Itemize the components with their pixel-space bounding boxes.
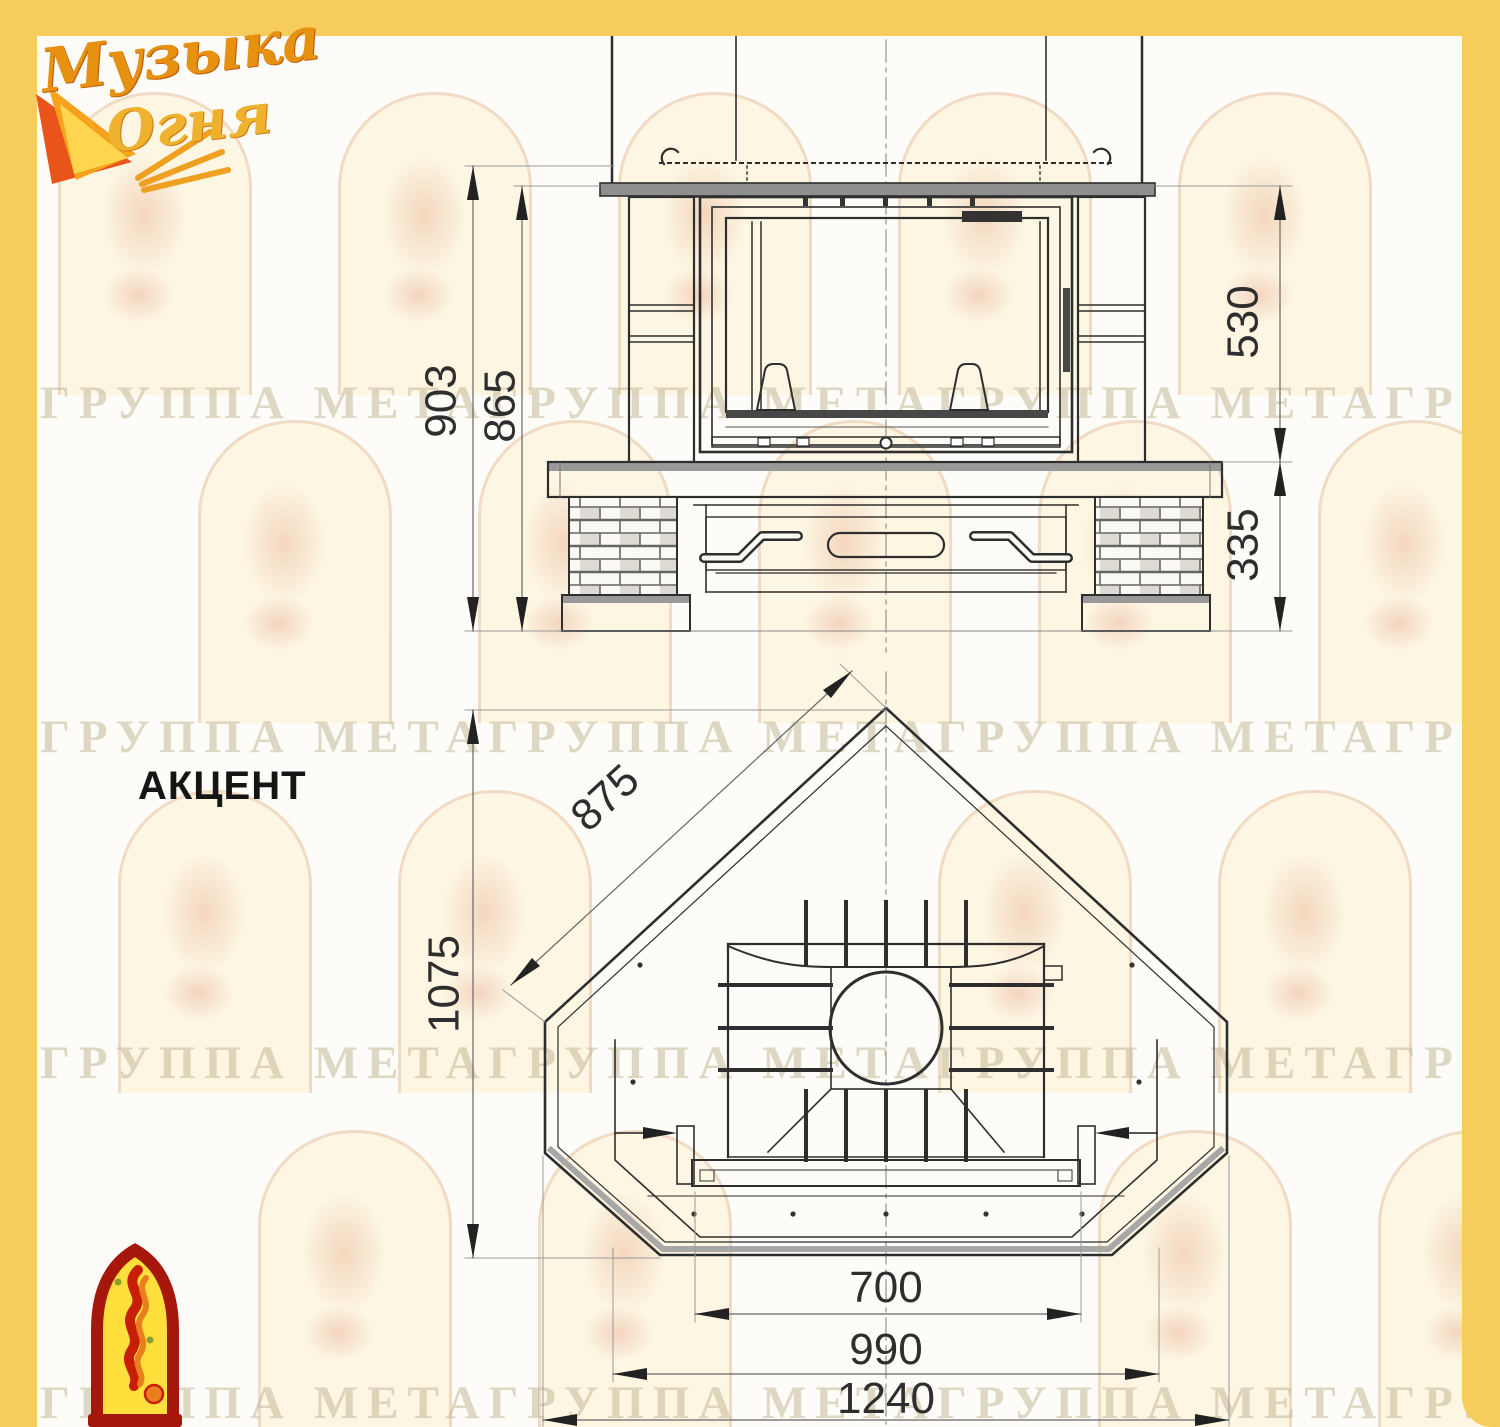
frame-left-border [0,0,37,1427]
plan-view: 1075 875 700 990 1240 [420,664,1229,1426]
front-elevation: 903 865 530 335 [417,36,1292,652]
brick-pedestal-right [1095,497,1203,595]
dim-side-edge: 875 [561,755,648,841]
emblem-sun-dot [145,1385,163,1403]
page: ГРУППА МЕТАГРУППА МЕТАГРУППА МЕТАГРУППА … [0,0,1500,1427]
fireplace-dimension-drawing: 903 865 530 335 [0,0,1500,1427]
andiron-left [757,364,795,410]
bench [548,462,1222,497]
model-title: АКЦЕНТ [138,764,307,809]
frame-right-border [1462,0,1500,1427]
latch-knob [881,438,892,449]
dim-inner-width: 990 [849,1325,922,1374]
brand-plate [962,211,1022,222]
dim-overall-width: 1240 [837,1374,935,1423]
frame-tabs [803,197,975,206]
mantel-shelf [600,183,1155,196]
side-tab [1044,966,1062,980]
andiron-right [950,364,988,410]
dim-depth: 1075 [420,935,469,1033]
plinth-left [562,595,690,631]
brick-pedestal-left [569,497,677,595]
hearth-band [726,410,1048,418]
dim-opening-width: 700 [849,1263,922,1312]
plinth-right [1082,595,1210,631]
door-hinge [1063,288,1070,372]
pillar-right [1078,197,1145,462]
chimney [612,36,1142,183]
plan-dimensions: 1075 875 700 990 1240 [420,664,1229,1426]
dim-shelf-height: 865 [476,369,525,442]
damper-hook-left [662,149,678,164]
emblem-dot [147,1337,154,1344]
pillar-left [629,197,694,462]
emblem-base [88,1414,182,1427]
emblem-dot [115,1279,122,1286]
door-glass [726,218,1048,412]
dimension-arrows [467,671,1229,1426]
dim-firebox-height: 530 [1219,285,1268,358]
flame-dancer-emblem [80,1242,190,1427]
dim-overall-height: 903 [417,364,466,437]
damper-hook-right [1094,149,1110,164]
brand-logo: Музыка Огня [14,12,284,202]
dim-base-height: 335 [1219,508,1268,581]
